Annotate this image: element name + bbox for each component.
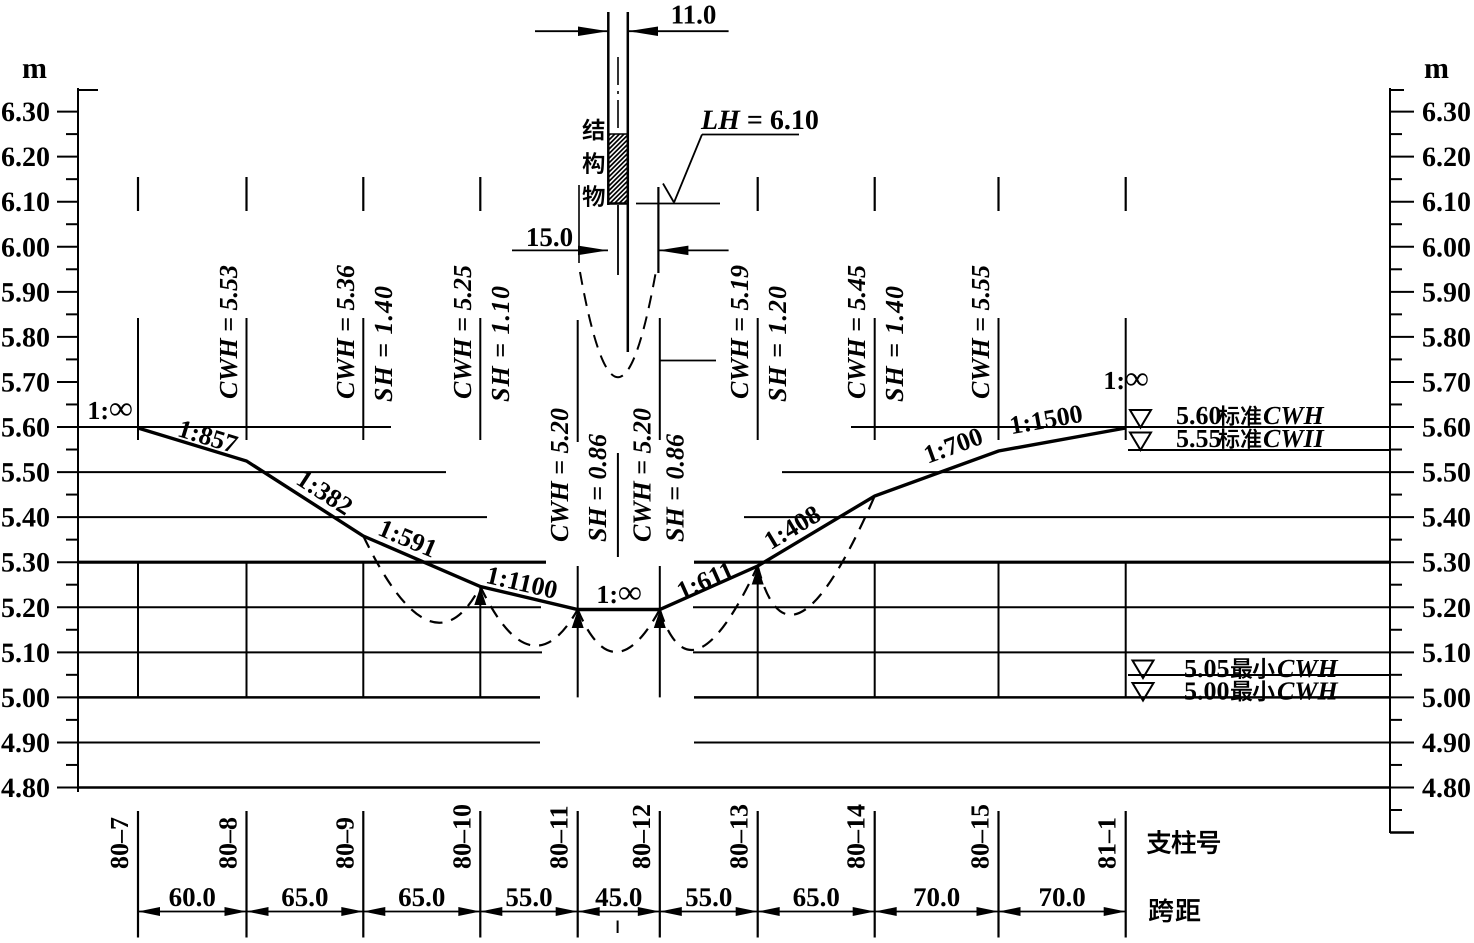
svg-text:6.20: 6.20 <box>1422 142 1471 173</box>
svg-text:70.0: 70.0 <box>913 882 960 912</box>
svg-text:6.10: 6.10 <box>1 187 50 218</box>
svg-text:11.0: 11.0 <box>671 0 717 30</box>
svg-text:5.20: 5.20 <box>1422 593 1471 624</box>
svg-text:81–1: 81–1 <box>1093 817 1122 869</box>
svg-text:60.0: 60.0 <box>169 882 216 912</box>
svg-text:5.10: 5.10 <box>1 638 50 669</box>
svg-text:5.90: 5.90 <box>1 277 50 308</box>
svg-text:5.00: 5.00 <box>1 683 50 714</box>
svg-text:80–15: 80–15 <box>966 804 995 869</box>
svg-text:80–14: 80–14 <box>842 804 871 869</box>
svg-text:65.0: 65.0 <box>398 882 445 912</box>
svg-text:80–11: 80–11 <box>545 805 574 869</box>
svg-text:5.60: 5.60 <box>1 413 50 444</box>
svg-text:80–9: 80–9 <box>330 817 359 869</box>
svg-text:80–12: 80–12 <box>627 804 656 869</box>
svg-text:80–13: 80–13 <box>725 804 754 869</box>
svg-text:6.10: 6.10 <box>1422 187 1471 218</box>
svg-text:80–7: 80–7 <box>105 817 134 869</box>
svg-text:45.0: 45.0 <box>595 882 642 912</box>
svg-text:CWH = 5.20: CWH = 5.20 <box>627 408 656 542</box>
svg-text:5.60: 5.60 <box>1422 413 1471 444</box>
svg-text:5.50: 5.50 <box>1422 458 1471 489</box>
svg-text:70.0: 70.0 <box>1038 882 1085 912</box>
svg-text:CWH = 5.45: CWH = 5.45 <box>842 265 871 399</box>
svg-text:SH = 1.20: SH = 1.20 <box>763 285 792 402</box>
svg-text:5.40: 5.40 <box>1 503 50 534</box>
svg-text:6.20: 6.20 <box>1 142 50 173</box>
svg-text:80–8: 80–8 <box>214 817 243 869</box>
svg-text:55.0: 55.0 <box>685 882 732 912</box>
svg-text:6.00: 6.00 <box>1422 232 1471 263</box>
svg-text:15.0: 15.0 <box>526 222 573 252</box>
svg-text:CWH: CWH <box>1277 677 1338 706</box>
svg-text:5.40: 5.40 <box>1422 503 1471 534</box>
svg-text:1:∞: 1:∞ <box>596 575 641 611</box>
svg-text:CWH = 5.55: CWH = 5.55 <box>966 265 995 399</box>
svg-text:m: m <box>22 52 47 85</box>
svg-text:5.80: 5.80 <box>1422 322 1471 353</box>
svg-text:4.90: 4.90 <box>1 728 50 759</box>
svg-text:5.30: 5.30 <box>1422 548 1471 579</box>
svg-text:80–10: 80–10 <box>447 804 476 869</box>
svg-text:SH = 0.86: SH = 0.86 <box>583 434 612 542</box>
svg-text:CWH = 5.25: CWH = 5.25 <box>448 265 477 399</box>
svg-text:SH = 1.40: SH = 1.40 <box>880 285 909 402</box>
svg-text:5.00: 5.00 <box>1422 683 1471 714</box>
svg-text:CWH = 5.36: CWH = 5.36 <box>331 265 360 399</box>
svg-text:55.0: 55.0 <box>505 882 552 912</box>
svg-text:SH = 1.10: SH = 1.10 <box>486 285 515 402</box>
svg-text:6.30: 6.30 <box>1422 97 1471 128</box>
svg-text:CWH = 5.20: CWH = 5.20 <box>545 408 574 542</box>
svg-text:6.30: 6.30 <box>1 97 50 128</box>
svg-text:4.90: 4.90 <box>1422 728 1471 759</box>
svg-text:LH = 6.10: LH = 6.10 <box>700 105 819 136</box>
svg-text:CWH = 5.53: CWH = 5.53 <box>214 265 243 399</box>
svg-text:65.0: 65.0 <box>281 882 328 912</box>
svg-text:6.00: 6.00 <box>1 232 50 263</box>
svg-text:5.55: 5.55 <box>1176 424 1222 453</box>
svg-text:65.0: 65.0 <box>793 882 840 912</box>
svg-text:SH = 1.40: SH = 1.40 <box>369 285 398 402</box>
svg-text:5.00: 5.00 <box>1184 677 1230 706</box>
svg-text:m: m <box>1424 52 1449 85</box>
svg-text:1:∞: 1:∞ <box>87 391 132 427</box>
svg-text:4.80: 4.80 <box>1422 773 1471 804</box>
svg-text:CWII: CWII <box>1263 424 1325 453</box>
svg-text:5.30: 5.30 <box>1 548 50 579</box>
svg-text:CWH = 5.19: CWH = 5.19 <box>725 265 754 399</box>
svg-text:5.70: 5.70 <box>1 367 50 398</box>
svg-text:5.10: 5.10 <box>1422 638 1471 669</box>
svg-text:4.80: 4.80 <box>1 773 50 804</box>
svg-text:5.80: 5.80 <box>1 322 50 353</box>
svg-text:SH = 0.86: SH = 0.86 <box>661 434 690 542</box>
svg-text:5.20: 5.20 <box>1 593 50 624</box>
svg-text:5.50: 5.50 <box>1 458 50 489</box>
svg-text:5.70: 5.70 <box>1422 367 1471 398</box>
svg-text:5.90: 5.90 <box>1422 277 1471 308</box>
